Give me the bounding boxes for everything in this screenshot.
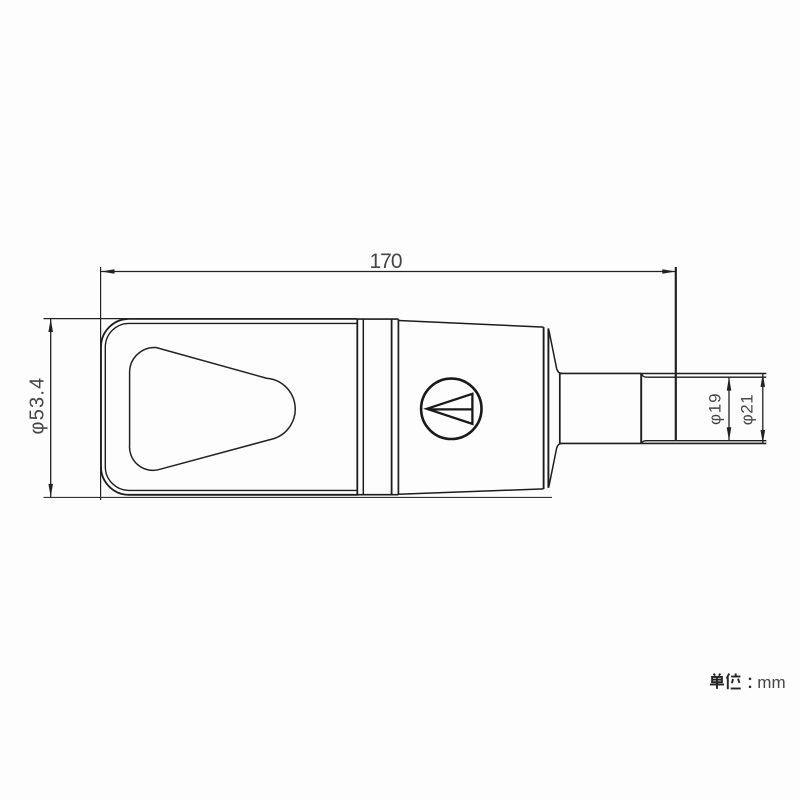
svg-text:mm: mm bbox=[757, 673, 785, 692]
svg-text:φ53.4: φ53.4 bbox=[27, 377, 49, 435]
svg-text:φ19: φ19 bbox=[706, 393, 725, 425]
svg-text:170: 170 bbox=[369, 250, 401, 273]
svg-text:φ21: φ21 bbox=[738, 394, 757, 425]
